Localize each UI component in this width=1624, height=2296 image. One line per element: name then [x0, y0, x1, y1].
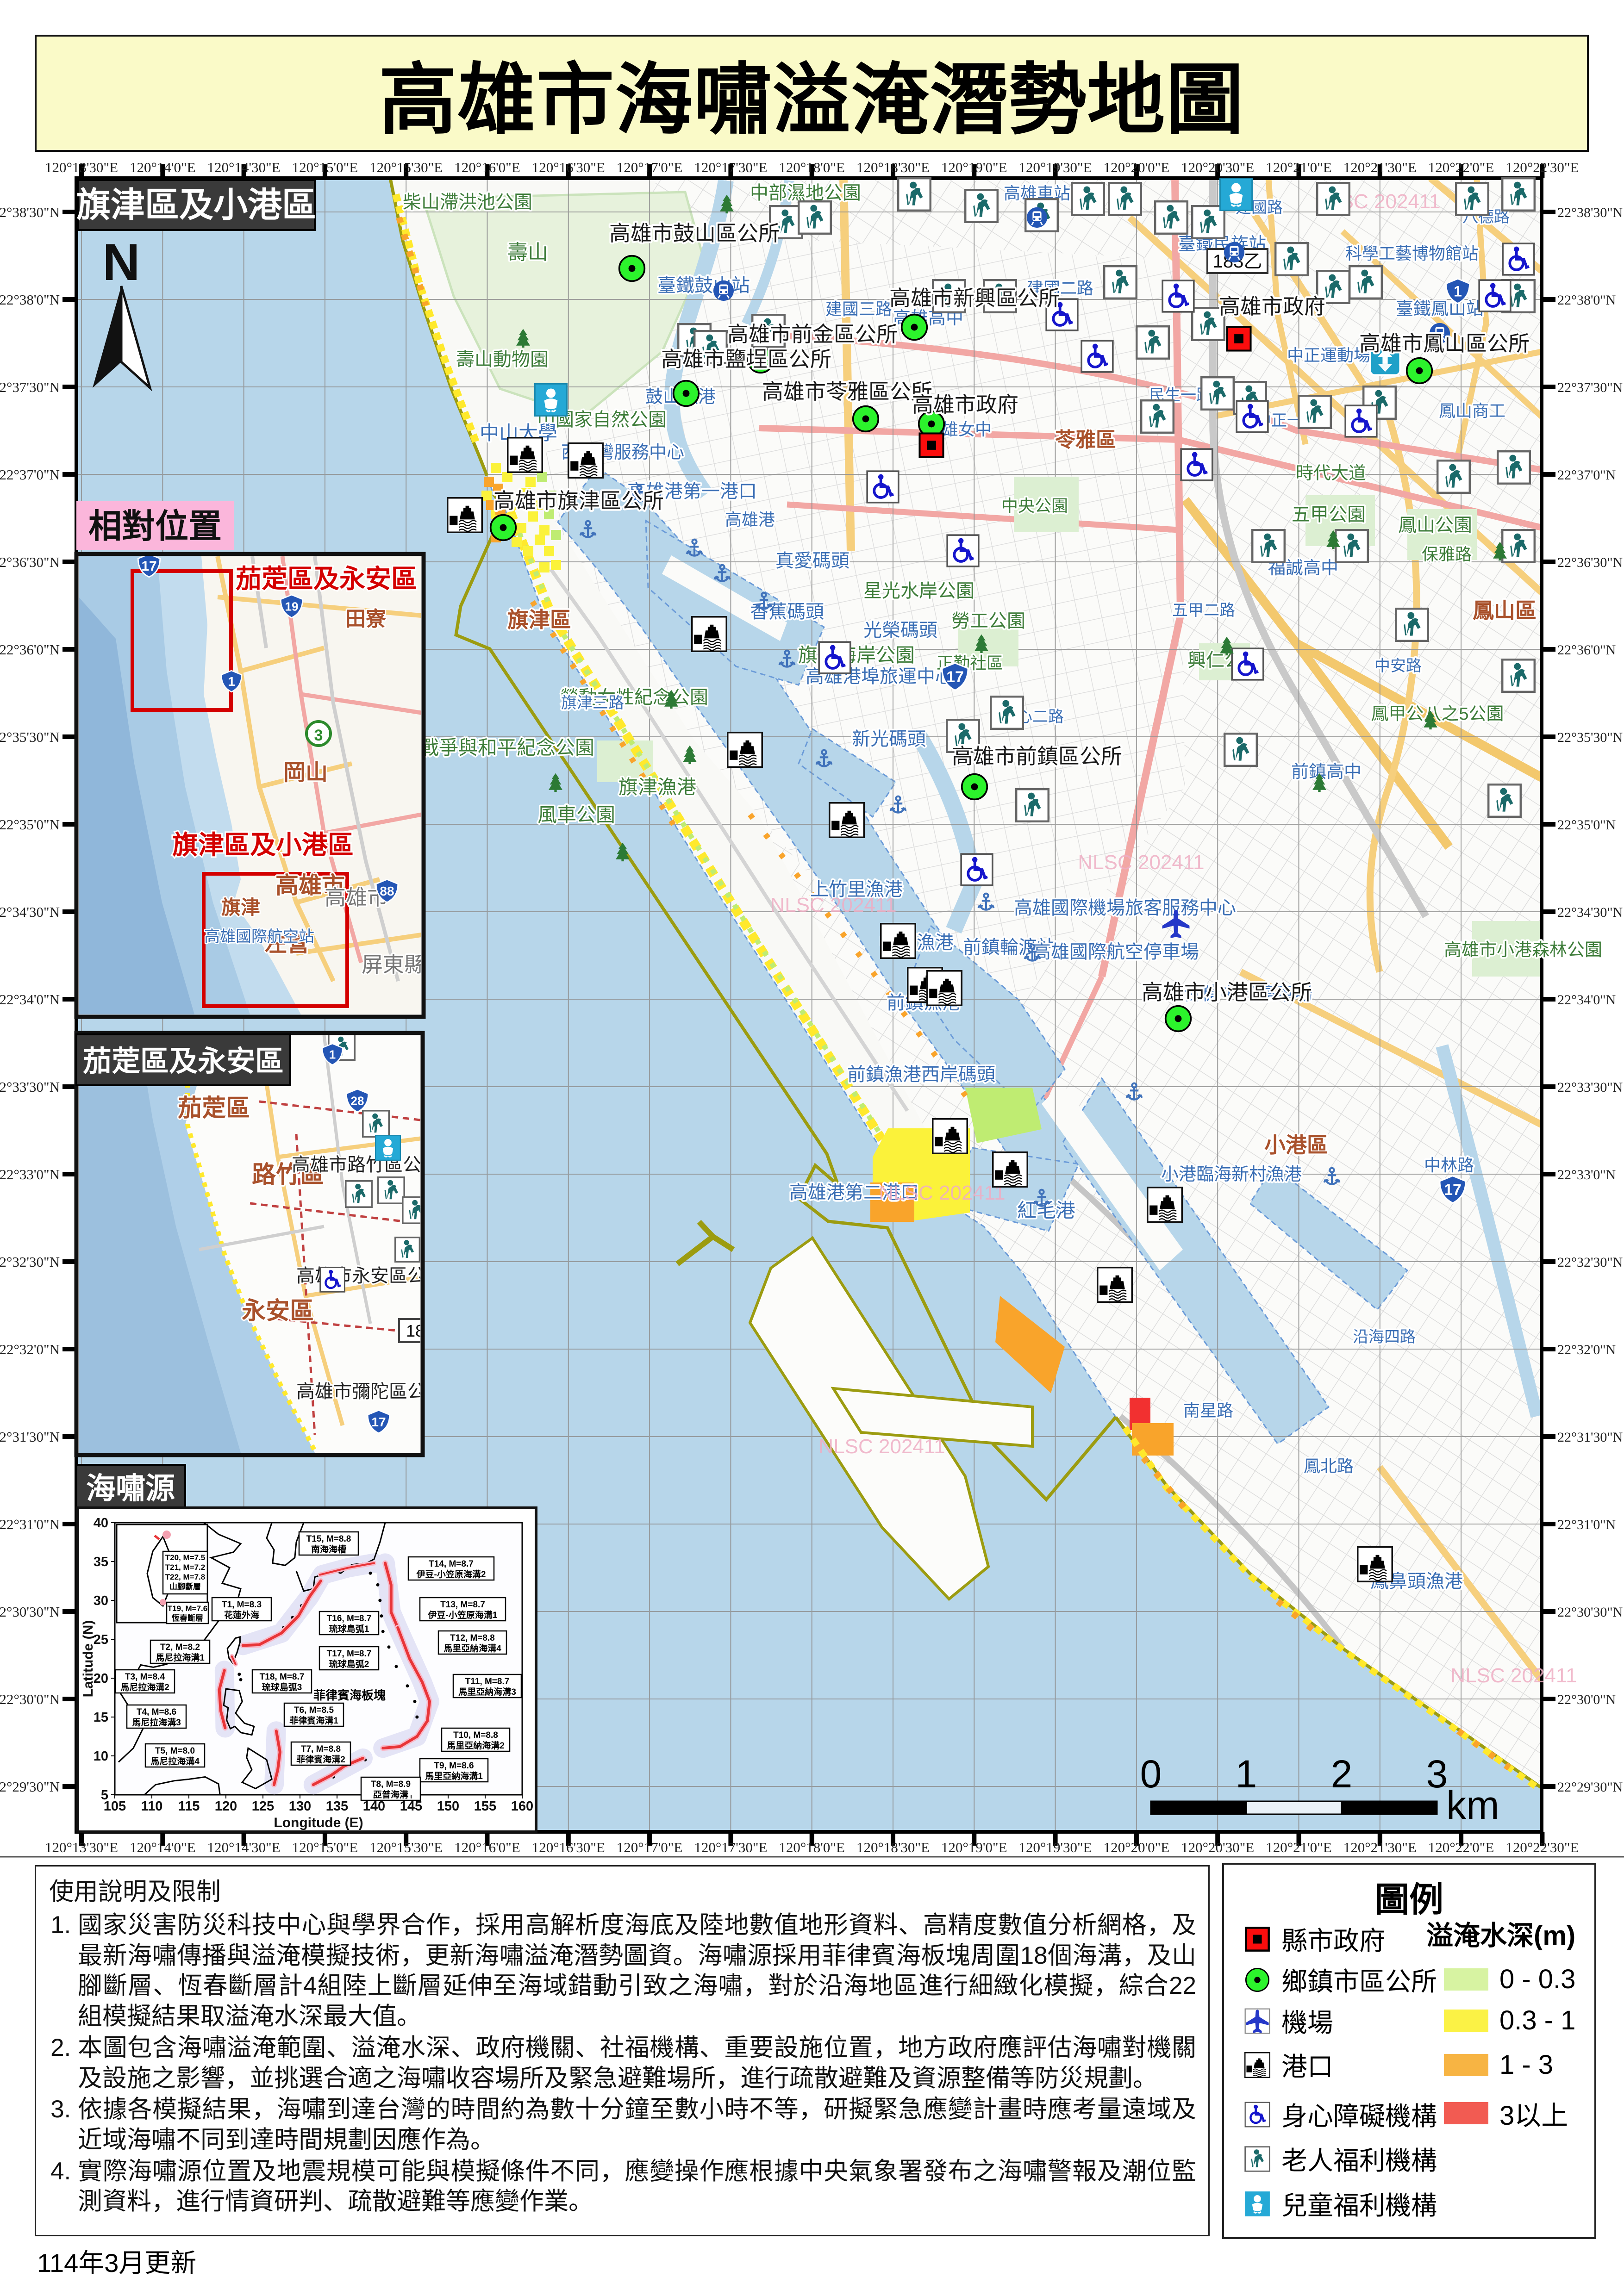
svg-text:科學工藝博物館站: 科學工藝博物館站: [1345, 244, 1479, 263]
svg-text:高雄市鳳山區公所: 高雄市鳳山區公所: [1359, 331, 1530, 355]
svg-text:17: 17: [141, 559, 156, 574]
svg-text:120°18'30"E: 120°18'30"E: [856, 159, 930, 175]
svg-text:120°22'0"E: 120°22'0"E: [1428, 1839, 1494, 1855]
svg-text:1: 1: [329, 1047, 336, 1061]
svg-text:高雄市前金區公所: 高雄市前金區公所: [727, 322, 898, 346]
svg-text:150: 150: [437, 1799, 459, 1814]
svg-text:馬里亞納海溝3: 馬里亞納海溝3: [458, 1686, 516, 1697]
svg-text:120°22'30"E: 120°22'30"E: [1505, 1839, 1579, 1855]
svg-text:高雄市新興區公所: 高雄市新興區公所: [889, 286, 1060, 310]
svg-text:星光水岸公園: 星光水岸公園: [863, 581, 974, 601]
svg-text:3: 3: [314, 727, 323, 744]
svg-text:120°21'30"E: 120°21'30"E: [1343, 1839, 1417, 1855]
svg-text:120°16'0"E: 120°16'0"E: [454, 1839, 520, 1855]
svg-text:5: 5: [101, 1788, 108, 1803]
svg-text:鳳山公園: 鳳山公園: [1398, 515, 1472, 535]
svg-text:T20, M=7.5: T20, M=7.5: [165, 1553, 205, 1562]
svg-text:田寮: 田寮: [345, 608, 386, 630]
svg-text:香蕉碼頭: 香蕉碼頭: [750, 602, 824, 622]
svg-text:鳳山商工: 鳳山商工: [1439, 401, 1505, 420]
svg-text:160: 160: [511, 1799, 533, 1814]
svg-text:22°30'0"N: 22°30'0"N: [1557, 1692, 1616, 1707]
svg-text:T11, M=8.7: T11, M=8.7: [465, 1677, 510, 1686]
svg-text:T6, M=8.5: T6, M=8.5: [294, 1705, 334, 1715]
svg-text:岡山: 岡山: [283, 760, 328, 785]
svg-text:125: 125: [252, 1799, 274, 1814]
svg-text:高雄市小港森林公園: 高雄市小港森林公園: [1444, 940, 1602, 960]
svg-text:T15, M=8.8: T15, M=8.8: [306, 1534, 351, 1544]
svg-text:沿海四路: 沿海四路: [1353, 1328, 1416, 1346]
svg-text:五甲二路: 五甲二路: [1172, 602, 1235, 619]
svg-text:88: 88: [380, 884, 394, 898]
svg-text:馬尼拉海溝2: 馬尼拉海溝2: [120, 1682, 169, 1692]
svg-text:高雄國際航空停車場: 高雄國際航空停車場: [1032, 942, 1199, 962]
svg-text:22°34'0"N: 22°34'0"N: [0, 991, 60, 1008]
svg-text:22°34'0"N: 22°34'0"N: [1557, 992, 1616, 1008]
svg-text:真愛碼頭: 真愛碼頭: [775, 551, 849, 571]
svg-text:22°32'0"N: 22°32'0"N: [1557, 1342, 1616, 1357]
svg-text:旗津海岸公園: 旗津海岸公園: [798, 644, 915, 666]
svg-text:120°19'30"E: 120°19'30"E: [1019, 1839, 1092, 1855]
svg-text:120°15'30"E: 120°15'30"E: [369, 1839, 443, 1855]
svg-text:旗津區及小港區: 旗津區及小港區: [76, 186, 316, 224]
svg-text:菲律賓海板塊: 菲律賓海板塊: [313, 1688, 386, 1702]
svg-text:120°20'30"E: 120°20'30"E: [1181, 1839, 1254, 1855]
svg-text:T2, M=8.2: T2, M=8.2: [160, 1643, 200, 1652]
svg-text:110: 110: [141, 1799, 163, 1814]
svg-text:馬尼拉海溝3: 馬尼拉海溝3: [132, 1717, 181, 1728]
svg-text:120°14'30"E: 120°14'30"E: [207, 159, 281, 175]
svg-text:亞普海溝: 亞普海溝: [373, 1789, 408, 1800]
svg-text:花蓮外海: 花蓮外海: [224, 1610, 259, 1620]
svg-text:22°37'30"N: 22°37'30"N: [1557, 380, 1623, 395]
svg-text:22°35'30"N: 22°35'30"N: [1557, 730, 1623, 745]
svg-text:T22, M=7.8: T22, M=7.8: [165, 1573, 205, 1581]
svg-text:NLSC 202411: NLSC 202411: [818, 1435, 945, 1458]
svg-text:T1, M=8.3: T1, M=8.3: [222, 1600, 262, 1610]
svg-text:135: 135: [326, 1799, 348, 1814]
svg-text:22°32'0"N: 22°32'0"N: [0, 1341, 60, 1357]
svg-text:茄萣區及永安區: 茄萣區及永安區: [236, 564, 417, 593]
svg-text:小港臨海新村漁港: 小港臨海新村漁港: [1161, 1165, 1302, 1184]
svg-text:3: 3: [1426, 1752, 1448, 1796]
svg-text:壽山: 壽山: [507, 241, 548, 264]
svg-text:120°20'30"E: 120°20'30"E: [1181, 159, 1254, 175]
svg-text:22°38'0"N: 22°38'0"N: [0, 292, 60, 308]
svg-text:苓雅區: 苓雅區: [1055, 429, 1116, 451]
svg-text:高雄市政府: 高雄市政府: [912, 392, 1018, 417]
svg-text:T10, M=8.8: T10, M=8.8: [453, 1730, 498, 1740]
svg-text:10: 10: [94, 1749, 108, 1764]
svg-text:120°21'30"E: 120°21'30"E: [1343, 159, 1417, 175]
svg-text:旗津三路: 旗津三路: [561, 694, 624, 712]
svg-text:0: 0: [1140, 1752, 1162, 1796]
svg-text:120°19'0"E: 120°19'0"E: [941, 1839, 1007, 1855]
svg-text:高雄港: 高雄港: [725, 510, 775, 529]
svg-text:22°35'30"N: 22°35'30"N: [0, 729, 60, 745]
svg-text:Latitude (N): Latitude (N): [81, 1620, 96, 1698]
svg-text:22°31'30"N: 22°31'30"N: [0, 1429, 60, 1445]
svg-text:22°37'0"N: 22°37'0"N: [0, 467, 60, 483]
svg-text:T4, M=8.6: T4, M=8.6: [137, 1707, 176, 1717]
svg-text:風車公園: 風車公園: [537, 804, 615, 826]
svg-text:馬里亞納海溝1: 馬里亞納海溝1: [425, 1771, 483, 1781]
svg-text:高雄市旗津區公所: 高雄市旗津區公所: [493, 489, 664, 513]
svg-text:中安路: 中安路: [1374, 657, 1422, 675]
svg-text:五甲公園: 五甲公園: [1292, 504, 1366, 525]
svg-text:旗津區及小港區: 旗津區及小港區: [172, 830, 354, 859]
svg-text:22°33'0"N: 22°33'0"N: [0, 1166, 60, 1182]
svg-text:1: 1: [228, 674, 235, 689]
svg-text:時代大道: 時代大道: [1296, 464, 1366, 483]
svg-text:120°20'0"E: 120°20'0"E: [1104, 159, 1170, 175]
svg-text:琉球島弧3: 琉球島弧3: [262, 1682, 302, 1692]
svg-text:120°22'30"E: 120°22'30"E: [1505, 159, 1579, 175]
svg-text:120°15'0"E: 120°15'0"E: [292, 1839, 358, 1855]
svg-text:120: 120: [215, 1799, 237, 1814]
svg-text:高雄市鼓山區公所: 高雄市鼓山區公所: [609, 221, 780, 245]
svg-text:T12, M=8.8: T12, M=8.8: [450, 1633, 495, 1643]
svg-text:22°30'30"N: 22°30'30"N: [0, 1604, 60, 1620]
svg-text:15: 15: [94, 1710, 108, 1725]
svg-text:17: 17: [1444, 1181, 1462, 1199]
svg-text:120°14'0"E: 120°14'0"E: [130, 1839, 196, 1855]
svg-text:22°36'30"N: 22°36'30"N: [0, 554, 60, 570]
svg-text:茄萣區: 茄萣區: [178, 1095, 250, 1122]
svg-text:南星路: 南星路: [1183, 1401, 1233, 1420]
svg-text:40: 40: [94, 1516, 108, 1531]
svg-text:120°21'0"E: 120°21'0"E: [1266, 159, 1332, 175]
svg-text:伊豆-小笠原海溝2: 伊豆-小笠原海溝2: [416, 1569, 486, 1580]
svg-text:Longitude (E): Longitude (E): [274, 1815, 363, 1830]
svg-text:高雄國際航空站: 高雄國際航空站: [204, 928, 314, 946]
svg-text:22°29'30"N: 22°29'30"N: [0, 1779, 60, 1795]
svg-text:琉球島弧1: 琉球島弧1: [329, 1624, 369, 1634]
svg-text:120°15'0"E: 120°15'0"E: [292, 159, 358, 175]
svg-text:鳳北路: 鳳北路: [1304, 1456, 1354, 1475]
svg-text:山腳斷層: 山腳斷層: [169, 1582, 201, 1591]
svg-text:km: km: [1446, 1783, 1499, 1828]
svg-text:中央公園: 中央公園: [1001, 496, 1068, 515]
svg-text:中正運動場: 中正運動場: [1287, 346, 1370, 365]
svg-text:19: 19: [285, 599, 299, 613]
svg-text:22°30'30"N: 22°30'30"N: [1557, 1605, 1623, 1620]
svg-text:120°22'0"E: 120°22'0"E: [1428, 159, 1494, 175]
svg-text:T3, M=8.4: T3, M=8.4: [125, 1672, 165, 1682]
svg-text:120°19'30"E: 120°19'30"E: [1019, 159, 1092, 175]
svg-text:建國三路: 建國三路: [825, 299, 892, 318]
svg-text:22°36'30"N: 22°36'30"N: [1557, 555, 1623, 570]
svg-text:22°37'0"N: 22°37'0"N: [1557, 467, 1616, 483]
svg-text:35: 35: [94, 1555, 108, 1569]
svg-text:NLSC 202411: NLSC 202411: [1078, 851, 1204, 874]
svg-text:22°34'30"N: 22°34'30"N: [1557, 905, 1623, 920]
svg-text:120°16'0"E: 120°16'0"E: [454, 159, 520, 175]
svg-text:120°20'0"E: 120°20'0"E: [1104, 1839, 1170, 1855]
svg-text:旗津區: 旗津區: [507, 608, 571, 632]
svg-text:前鎮漁港西岸碼頭: 前鎮漁港西岸碼頭: [847, 1064, 995, 1085]
svg-text:T8, M=8.9: T8, M=8.9: [371, 1780, 411, 1789]
svg-text:光榮碼頭: 光榮碼頭: [863, 620, 937, 641]
svg-text:22°33'30"N: 22°33'30"N: [1557, 1080, 1623, 1095]
svg-text:T5, M=8.0: T5, M=8.0: [155, 1746, 195, 1756]
svg-text:T14, M=8.7: T14, M=8.7: [429, 1559, 474, 1569]
svg-text:T16, M=8.7: T16, M=8.7: [327, 1614, 372, 1624]
svg-text:22°38'0"N: 22°38'0"N: [1557, 292, 1616, 308]
svg-text:旗津: 旗津: [221, 896, 260, 918]
svg-text:120°17'30"E: 120°17'30"E: [694, 159, 767, 175]
svg-text:永安區: 永安區: [242, 1298, 314, 1325]
svg-text:22°32'30"N: 22°32'30"N: [0, 1254, 60, 1270]
svg-text:琉球島弧2: 琉球島弧2: [329, 1659, 369, 1669]
svg-text:NLSC 202411: NLSC 202411: [879, 1182, 1005, 1204]
svg-text:140: 140: [363, 1799, 385, 1814]
svg-text:120°18'30"E: 120°18'30"E: [856, 1839, 930, 1855]
svg-text:茄萣區及永安區: 茄萣區及永安區: [83, 1045, 284, 1077]
svg-text:120°13'30"E: 120°13'30"E: [45, 1839, 118, 1855]
svg-text:高雄市苓雅區公所: 高雄市苓雅區公所: [762, 380, 932, 404]
svg-text:2: 2: [1331, 1752, 1353, 1796]
svg-text:22°30'0"N: 22°30'0"N: [0, 1691, 60, 1707]
svg-text:1: 1: [1236, 1752, 1257, 1796]
svg-text:22°38'30"N: 22°38'30"N: [1557, 205, 1623, 220]
svg-text:22°32'30"N: 22°32'30"N: [1557, 1255, 1623, 1270]
svg-text:22°36'0"N: 22°36'0"N: [1557, 642, 1616, 658]
svg-text:120°13'30"E: 120°13'30"E: [45, 159, 118, 175]
svg-text:NLSC 202411: NLSC 202411: [1450, 1664, 1577, 1687]
svg-text:22°37'30"N: 22°37'30"N: [0, 379, 60, 395]
svg-text:恆春斷層: 恆春斷層: [172, 1613, 203, 1623]
svg-text:22°33'0"N: 22°33'0"N: [1557, 1167, 1616, 1182]
svg-text:T17, M=8.7: T17, M=8.7: [327, 1649, 372, 1659]
svg-text:高雄市政府: 高雄市政府: [1219, 294, 1325, 318]
svg-text:臺鐵鼓山站: 臺鐵鼓山站: [657, 275, 750, 296]
svg-text:NLSC 202411: NLSC 202411: [770, 894, 896, 916]
svg-text:T21, M=7.2: T21, M=7.2: [165, 1563, 205, 1572]
svg-text:新光碼頭: 新光碼頭: [852, 729, 926, 749]
svg-text:22°35'0"N: 22°35'0"N: [0, 816, 60, 833]
svg-text:22°36'0"N: 22°36'0"N: [0, 641, 60, 658]
svg-text:120°17'0"E: 120°17'0"E: [617, 159, 683, 175]
svg-text:22°33'30"N: 22°33'30"N: [0, 1079, 60, 1095]
svg-text:120°21'0"E: 120°21'0"E: [1266, 1839, 1332, 1855]
svg-text:小港區: 小港區: [1264, 1133, 1328, 1157]
svg-text:臺鐵鳳山站: 臺鐵鳳山站: [1396, 299, 1484, 319]
svg-text:戰爭與和平紀念公園: 戰爭與和平紀念公園: [419, 737, 594, 759]
svg-text:海嘯源: 海嘯源: [86, 1472, 175, 1505]
svg-text:中部濕地公園: 中部濕地公園: [750, 183, 861, 203]
svg-text:130: 130: [289, 1799, 311, 1814]
svg-text:前鎮高中: 前鎮高中: [1291, 762, 1362, 782]
svg-text:145: 145: [400, 1799, 422, 1814]
svg-text:120°19'0"E: 120°19'0"E: [941, 159, 1007, 175]
svg-text:22°38'30"N: 22°38'30"N: [0, 204, 60, 220]
svg-text:22°31'0"N: 22°31'0"N: [1557, 1517, 1616, 1532]
svg-text:120°14'30"E: 120°14'30"E: [207, 1839, 281, 1855]
svg-text:鳳山區: 鳳山區: [1473, 598, 1537, 622]
svg-text:120°17'30"E: 120°17'30"E: [694, 1839, 767, 1855]
svg-text:馬里亞納海溝2: 馬里亞納海溝2: [447, 1740, 505, 1751]
svg-text:菲律賓海溝2: 菲律賓海溝2: [296, 1754, 345, 1765]
svg-text:菲律賓海溝1: 菲律賓海溝1: [289, 1715, 338, 1726]
svg-text:120°16'30"E: 120°16'30"E: [532, 159, 605, 175]
svg-text:120°14'0"E: 120°14'0"E: [130, 159, 196, 175]
svg-text:28: 28: [351, 1094, 364, 1108]
svg-text:鳳甲公八之5公園: 鳳甲公八之5公園: [1371, 704, 1504, 724]
svg-text:柴山滯洪池公園: 柴山滯洪池公園: [403, 192, 532, 212]
svg-text:22°29'30"N: 22°29'30"N: [1557, 1780, 1623, 1795]
svg-text:旗津漁港: 旗津漁港: [618, 776, 696, 798]
svg-text:高雄國際機場旅客服務中心: 高雄國際機場旅客服務中心: [1014, 898, 1236, 918]
svg-text:T9, M=8.6: T9, M=8.6: [434, 1761, 474, 1771]
svg-text:T18, M=8.7: T18, M=8.7: [260, 1672, 305, 1682]
svg-text:屏東縣: 屏東縣: [362, 952, 425, 977]
svg-text:120°17'0"E: 120°17'0"E: [617, 1839, 683, 1855]
svg-text:勞工公園: 勞工公園: [951, 611, 1025, 631]
svg-text:120°15'30"E: 120°15'30"E: [369, 159, 443, 175]
svg-text:155: 155: [474, 1799, 496, 1814]
svg-text:中林路: 中林路: [1424, 1156, 1474, 1175]
svg-text:22°34'30"N: 22°34'30"N: [0, 904, 60, 920]
svg-text:相對位置: 相對位置: [88, 508, 222, 545]
svg-text:17: 17: [371, 1415, 386, 1429]
svg-text:T7, M=8.8: T7, M=8.8: [301, 1744, 341, 1754]
svg-text:115: 115: [178, 1799, 200, 1814]
svg-text:T19, M=7.6: T19, M=7.6: [168, 1604, 207, 1613]
svg-text:N: N: [103, 233, 140, 291]
svg-text:南海海槽: 南海海槽: [311, 1544, 346, 1555]
svg-text:高雄市前鎮區公所: 高雄市前鎮區公所: [952, 744, 1122, 768]
svg-text:伊豆-小笠原海溝1: 伊豆-小笠原海溝1: [428, 1610, 498, 1620]
svg-text:22°31'0"N: 22°31'0"N: [0, 1516, 60, 1532]
svg-text:高雄市路竹區公所: 高雄市路竹區公所: [292, 1155, 440, 1175]
svg-text:馬尼拉海溝1: 馬尼拉海溝1: [156, 1652, 205, 1663]
svg-text:壽山動物園: 壽山動物園: [456, 349, 549, 370]
svg-text:高雄市鹽埕區公所: 高雄市鹽埕區公所: [661, 347, 831, 371]
svg-text:保雅路: 保雅路: [1422, 545, 1472, 564]
svg-text:馬里亞納海溝4: 馬里亞納海溝4: [443, 1643, 501, 1654]
svg-text:22°35'0"N: 22°35'0"N: [1557, 817, 1616, 833]
svg-text:高雄市小港區公所: 高雄市小港區公所: [1142, 980, 1312, 1004]
svg-text:120°16'30"E: 120°16'30"E: [532, 1839, 605, 1855]
svg-text:17: 17: [946, 668, 964, 686]
svg-text:30: 30: [94, 1593, 108, 1608]
svg-text:1: 1: [1454, 283, 1462, 300]
svg-text:120°18'0"E: 120°18'0"E: [779, 1839, 845, 1855]
svg-text:T13, M=8.7: T13, M=8.7: [440, 1600, 485, 1610]
svg-text:馬尼拉海溝4: 馬尼拉海溝4: [150, 1756, 200, 1767]
svg-text:120°18'0"E: 120°18'0"E: [779, 159, 845, 175]
svg-text:22°31'30"N: 22°31'30"N: [1557, 1430, 1623, 1445]
